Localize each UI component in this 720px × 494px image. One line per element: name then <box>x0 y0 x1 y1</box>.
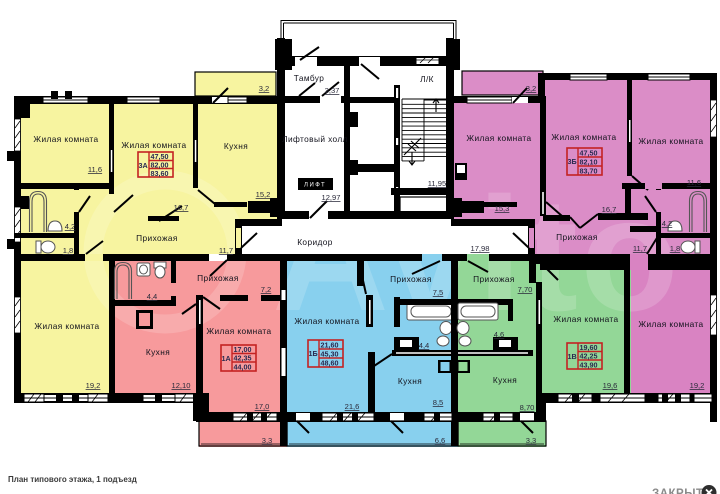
svg-text:12,10: 12,10 <box>171 381 190 390</box>
svg-text:Прихожая: Прихожая <box>390 274 432 284</box>
svg-text:План типового этажа, 1 подъезд: План типового этажа, 1 подъезд <box>8 475 137 484</box>
svg-text:12,97: 12,97 <box>321 193 340 202</box>
svg-text:19,2: 19,2 <box>690 381 705 390</box>
svg-text:Жилая комната: Жилая комната <box>206 326 271 336</box>
svg-text:48,60: 48,60 <box>321 359 339 368</box>
svg-text:Жилая комната: Жилая комната <box>33 134 98 144</box>
svg-text:11,95: 11,95 <box>428 179 446 188</box>
svg-text:11,6: 11,6 <box>687 178 701 187</box>
svg-text:3,3: 3,3 <box>526 436 537 445</box>
svg-text:8,5: 8,5 <box>433 398 444 407</box>
svg-text:1,8: 1,8 <box>63 246 74 255</box>
svg-text:Тамбур: Тамбур <box>294 73 325 83</box>
svg-text:19,6: 19,6 <box>603 381 618 390</box>
svg-text:Л/К: Л/К <box>420 74 434 84</box>
svg-text:16,7: 16,7 <box>174 203 189 212</box>
svg-text:1Б: 1Б <box>309 349 318 358</box>
svg-text:Кухня: Кухня <box>146 347 170 357</box>
svg-text:17,98: 17,98 <box>470 244 489 253</box>
svg-text:3А: 3А <box>139 161 148 170</box>
svg-text:Прихожая: Прихожая <box>136 233 178 243</box>
svg-text:6,6: 6,6 <box>435 436 446 445</box>
svg-text:21,6: 21,6 <box>345 402 360 411</box>
svg-text:83,60: 83,60 <box>151 169 169 178</box>
svg-text:4,2: 4,2 <box>65 222 76 231</box>
svg-text:1В: 1В <box>568 352 577 361</box>
svg-text:47,50: 47,50 <box>580 149 598 158</box>
svg-text:Кухня: Кухня <box>493 375 517 385</box>
svg-text:Коридор: Коридор <box>297 237 333 247</box>
svg-text:82,10: 82,10 <box>580 158 598 167</box>
svg-text:4,2: 4,2 <box>662 219 673 228</box>
svg-text:Жилая комната: Жилая комната <box>553 314 618 324</box>
svg-text:Кухня: Кухня <box>224 141 248 151</box>
svg-text:1А: 1А <box>222 354 231 363</box>
svg-text:42,25: 42,25 <box>580 352 598 361</box>
svg-text:17,0: 17,0 <box>255 402 270 411</box>
svg-text:Кухня: Кухня <box>398 376 422 386</box>
svg-text:3Б: 3Б <box>568 157 577 166</box>
svg-text:15,3: 15,3 <box>495 204 510 213</box>
svg-text:11,6: 11,6 <box>88 165 102 174</box>
svg-text:Лифтовый холл: Лифтовый холл <box>282 134 348 144</box>
svg-text:7,5: 7,5 <box>433 288 444 297</box>
svg-text:42,35: 42,35 <box>234 354 252 363</box>
svg-text:45,30: 45,30 <box>321 350 339 359</box>
svg-text:Жилая комната: Жилая комната <box>638 319 703 329</box>
svg-text:3,37: 3,37 <box>325 86 340 95</box>
svg-text:Прихожая: Прихожая <box>556 232 598 242</box>
svg-text:19,2: 19,2 <box>86 381 101 390</box>
svg-text:Жилая комната: Жилая комната <box>638 136 703 146</box>
svg-text:8,70: 8,70 <box>520 403 535 412</box>
svg-text:21,60: 21,60 <box>321 341 339 350</box>
svg-text:16,7: 16,7 <box>602 205 617 214</box>
svg-text:44,00: 44,00 <box>234 363 252 372</box>
svg-text:4,4: 4,4 <box>147 292 158 301</box>
svg-text:3,3: 3,3 <box>262 436 273 445</box>
svg-text:11,7: 11,7 <box>633 244 647 253</box>
svg-text:Жилая комната: Жилая комната <box>121 140 186 150</box>
svg-text:4,4: 4,4 <box>419 341 430 350</box>
svg-text:Жилая комната: Жилая комната <box>34 321 99 331</box>
svg-text:7,2: 7,2 <box>261 285 272 294</box>
svg-text:ЛИФТ: ЛИФТ <box>304 183 326 189</box>
svg-text:3,2: 3,2 <box>259 84 270 93</box>
svg-text:7,70: 7,70 <box>518 285 533 294</box>
svg-text:4,6: 4,6 <box>494 330 505 339</box>
svg-text:15,2: 15,2 <box>256 190 271 199</box>
svg-text:Жилая комната: Жилая комната <box>466 133 531 143</box>
svg-text:Прихожая: Прихожая <box>473 274 515 284</box>
svg-text:Жилая комната: Жилая комната <box>551 132 616 142</box>
svg-text:1,8: 1,8 <box>670 244 681 253</box>
svg-text:83,70: 83,70 <box>580 167 598 176</box>
svg-text:Прихожая: Прихожая <box>197 273 239 283</box>
svg-text:Жилая комната: Жилая комната <box>294 316 359 326</box>
svg-text:43,90: 43,90 <box>580 361 598 370</box>
svg-text:3,2: 3,2 <box>526 84 537 93</box>
svg-text:11,7: 11,7 <box>219 246 233 255</box>
